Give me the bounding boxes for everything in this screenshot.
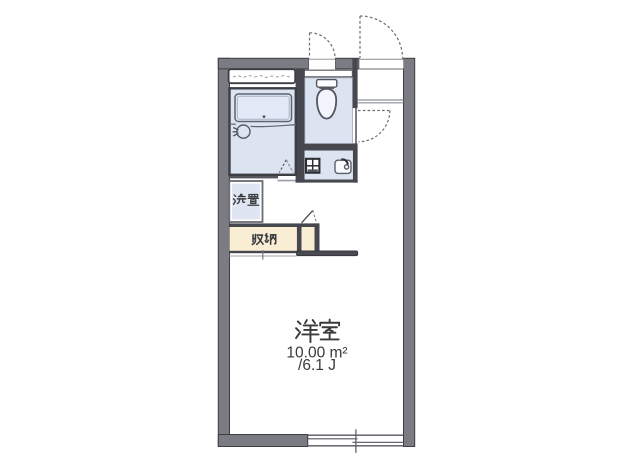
svg-text:/6.1 J: /6.1 J <box>298 357 336 374</box>
